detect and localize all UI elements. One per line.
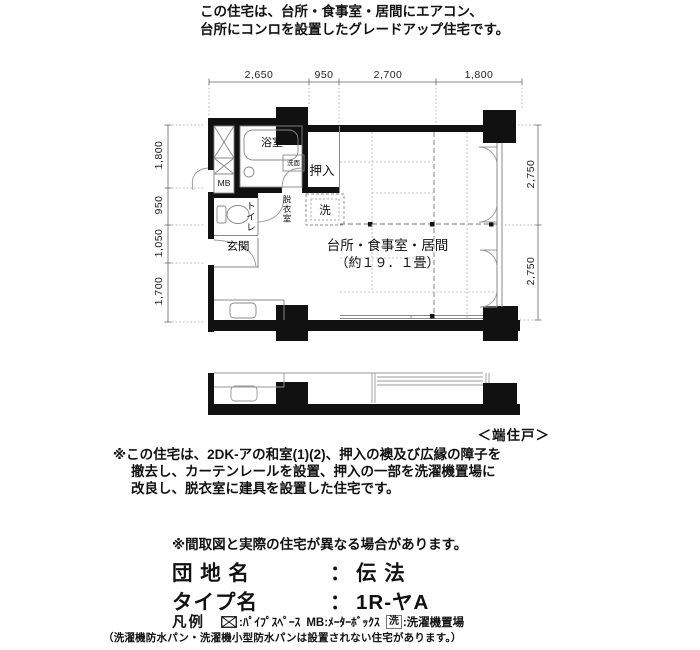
dim-left-4: 1,700: [153, 261, 165, 321]
legend-row: 凡例 :ﾊﾟｲﾌﾟｽﾍﾟｰｽ MB:ﾒｰﾀｰﾎﾞｯｸｽ 洗:洗濯機置場: [172, 611, 464, 632]
window-casement-arc-1: [479, 147, 497, 165]
dim-top-3: 2,700: [358, 69, 418, 81]
disclaimer-note: ※間取図と実際の住宅が異なる場合があります。: [172, 536, 467, 553]
legend-pipe-space: :ﾊﾟｲﾌﾟｽﾍﾟｰｽ: [239, 614, 300, 630]
remodel-note-line2: 撤去し、カーテンレールを設置、押入の一部を洗濯機置場に: [113, 463, 501, 480]
room-label-washbasin: 洗面: [283, 157, 304, 167]
balcony-structure: [208, 373, 520, 415]
pipe-space-icon: [221, 616, 237, 628]
dim-top-1: 2,650: [229, 69, 289, 81]
header-description: この住宅は、台所・食事室・居間にエアコン、 台所にコンロを設置したグレードアップ…: [200, 3, 509, 38]
legend-title: 凡例: [172, 611, 205, 632]
room-label-living-size: （約１９．１畳）: [295, 252, 480, 271]
estate-name-colon: ：: [330, 556, 356, 586]
dim-right-1: 2,750: [525, 144, 537, 204]
window-casement-arc-3: [480, 250, 497, 267]
toilet-tank: [217, 206, 226, 223]
estate-name-value: 伝 法: [356, 562, 406, 585]
room-label-dressing: 脱衣室: [281, 195, 293, 224]
legend-meter-box: MB:ﾒｰﾀｰﾎﾞｯｸｽ: [306, 614, 379, 630]
header-line1: この住宅は、台所・食事室・居間にエアコン、: [200, 3, 509, 21]
fixtures: [214, 126, 344, 318]
unit-position-label: ＜端住戸＞: [440, 424, 550, 444]
window-casement-arc-2: [479, 204, 497, 222]
legend-laundry: :洗濯機置場: [403, 614, 464, 630]
header-line2: 台所にコンロを設置したグレードアップ住宅です。: [200, 21, 509, 39]
removed-partitions: [340, 132, 497, 319]
room-label-meter-box: MB: [214, 178, 234, 188]
kitchen-sink: [230, 303, 256, 318]
remodel-note-line3: 改良し、脱衣室に建具を設置した住宅です。: [113, 480, 501, 497]
dim-top-2: 950: [294, 69, 354, 81]
remodel-note-line1: ※この住宅は、2DK-アの和室(1)(2)、押入の襖及び広縁の障子を: [113, 446, 501, 463]
room-label-bath: 浴室: [258, 134, 286, 150]
meter-box-door-arc: [192, 168, 208, 190]
bath-drain: [244, 167, 254, 177]
dim-right-2: 2,750: [525, 241, 537, 301]
room-label-entrance: 玄関: [219, 238, 257, 254]
floorplan-page: この住宅は、台所・食事室・居間にエアコン、 台所にコンロを設置したグレードアップ…: [0, 0, 700, 650]
legend-subnote: （洗濯機防水パン・洗濯機小型防水パンは設置されない住宅があります。）: [103, 630, 462, 645]
room-label-living: 台所・食事室・居間: [295, 234, 480, 254]
partitions: [214, 126, 502, 320]
estate-name-label: 団 地 名: [172, 556, 330, 586]
window-casement-arc-4: [480, 290, 497, 307]
room-label-closet: 押入: [307, 160, 337, 179]
estate-name-row: 団 地 名：伝 法: [172, 556, 406, 586]
legend-laundry-icon: 洗: [386, 615, 402, 629]
floor-grid: [340, 132, 497, 320]
remodel-note: ※この住宅は、2DK-アの和室(1)(2)、押入の襖及び広縁の障子を 撤去し、カ…: [113, 446, 501, 497]
dim-top-4: 1,800: [449, 69, 509, 81]
room-label-toilet: トイレ: [242, 201, 256, 233]
room-label-laundry: 洗: [311, 202, 339, 218]
